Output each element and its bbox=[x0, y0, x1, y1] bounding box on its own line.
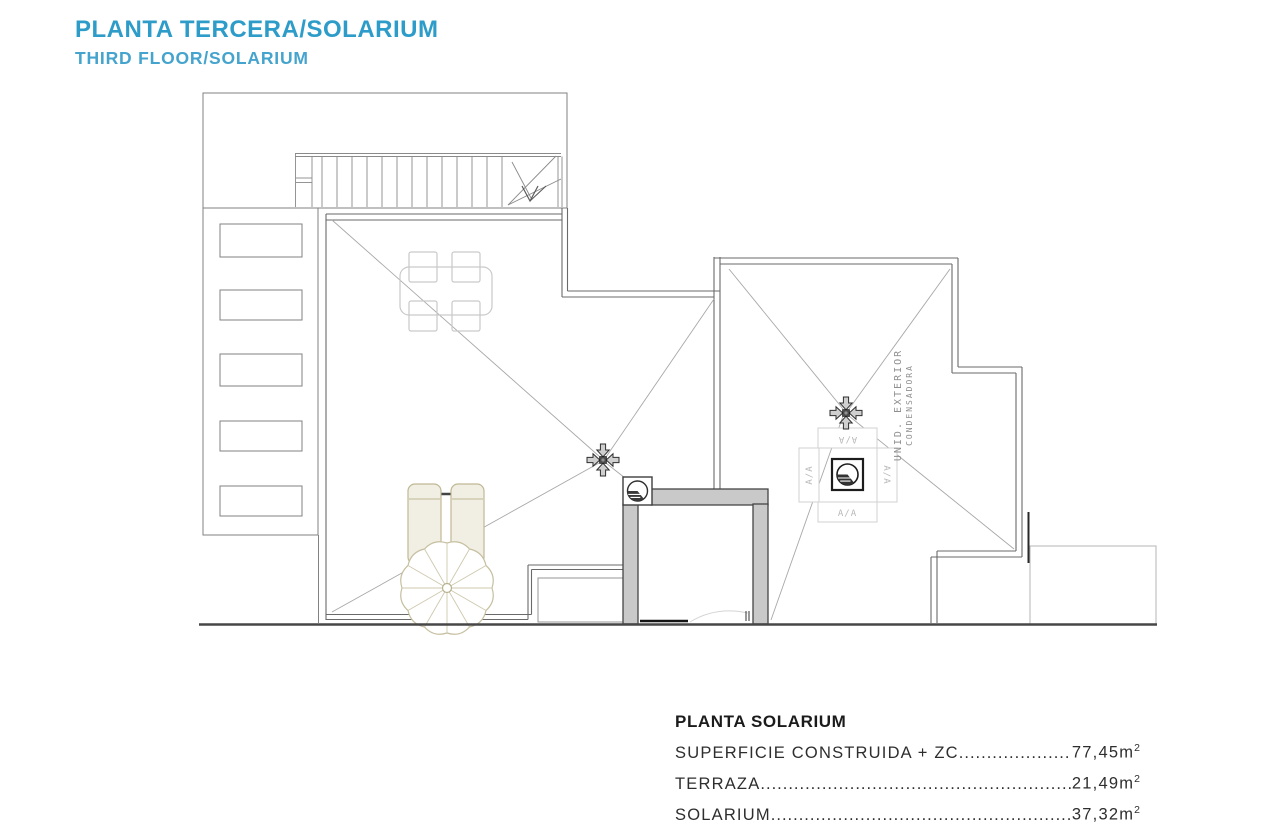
drain-arrows-icon bbox=[830, 397, 862, 429]
aa-label-left: A/A bbox=[805, 465, 815, 484]
legend-title: PLANTA SOLARIUM bbox=[675, 712, 1140, 732]
ac-fan-icon bbox=[832, 459, 863, 490]
aa-label-bottom: A/A bbox=[838, 509, 857, 519]
legend-row-terraza: TERRAZA21,49m2 bbox=[675, 766, 1140, 797]
neighbor-roof-block bbox=[1030, 546, 1156, 624]
legend-value: 77,45m2 bbox=[1072, 735, 1140, 766]
stair-direction-arrow-icon bbox=[508, 156, 561, 205]
dot-leader bbox=[771, 802, 1072, 828]
legend-label: SUPERFICIE CONSTRUIDA + ZC bbox=[675, 740, 959, 767]
louver-facade-panel bbox=[203, 208, 319, 623]
table bbox=[400, 267, 492, 315]
legend-label: SOLARIUM bbox=[675, 802, 771, 828]
staircase bbox=[295, 154, 562, 208]
aa-label-top: A/A bbox=[838, 434, 857, 444]
parasol-umbrella bbox=[401, 542, 494, 635]
elevator-fan-icon bbox=[623, 477, 652, 505]
legend-row-superficie: SUPERFICIE CONSTRUIDA + ZC77,45m2 bbox=[675, 735, 1140, 766]
lower-planter-box bbox=[538, 578, 624, 622]
chair bbox=[452, 301, 480, 331]
legend-value: 37,32m2 bbox=[1072, 797, 1140, 828]
dot-leader bbox=[760, 771, 1072, 798]
floorplan-page: { "header": { "title": "PLANTA TERCERA/S… bbox=[0, 0, 1280, 800]
condenser-label-line2: CONDENSADORA bbox=[905, 364, 914, 446]
area-summary: PLANTA SOLARIUM SUPERFICIE CONSTRUIDA + … bbox=[675, 712, 1140, 828]
condenser-label-line1: UNID. EXTERIOR bbox=[893, 349, 904, 461]
legend-row-solarium: SOLARIUM37,32m2 bbox=[675, 797, 1140, 828]
terrace-room-walls bbox=[326, 208, 720, 620]
drain-arrows-icon bbox=[587, 444, 619, 476]
floorplan-drawing: A/A A/A A/A A/A UNID. EXTERIOR CONDENSAD… bbox=[0, 0, 1280, 800]
aa-label-right: A/A bbox=[881, 465, 891, 484]
elevator-shaft bbox=[623, 477, 768, 624]
dining-set bbox=[400, 252, 492, 331]
legend-label: TERRAZA bbox=[675, 771, 760, 798]
upper-volume bbox=[203, 93, 567, 208]
legend-value: 21,49m2 bbox=[1072, 766, 1140, 797]
dot-leader bbox=[959, 740, 1072, 767]
ac-condenser-unit: A/A A/A A/A A/A UNID. EXTERIOR CONDENSAD… bbox=[799, 349, 914, 522]
chair bbox=[409, 301, 437, 331]
